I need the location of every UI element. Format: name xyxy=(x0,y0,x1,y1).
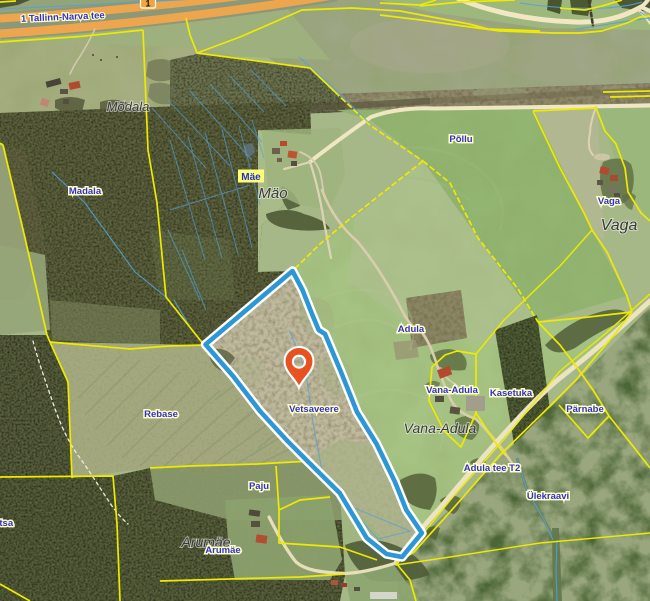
svg-text:Adula: Adula xyxy=(398,324,425,335)
svg-text:Vaga: Vaga xyxy=(598,196,621,207)
svg-text:1: 1 xyxy=(145,0,150,9)
svg-text:Adula tee T2: Adula tee T2 xyxy=(464,463,521,474)
svg-text:Vetsaveere: Vetsaveere xyxy=(289,404,339,415)
svg-text:Vana-Adula: Vana-Adula xyxy=(404,420,477,436)
svg-text:Mõdala: Mõdala xyxy=(107,99,150,114)
svg-text:Põllu: Põllu xyxy=(449,134,472,145)
svg-text:Paju: Paju xyxy=(249,481,269,492)
svg-text:Kasetuka: Kasetuka xyxy=(490,388,533,399)
svg-text:Madala: Madala xyxy=(69,186,102,197)
svg-text:Pärnabe: Pärnabe xyxy=(566,404,604,415)
svg-text:Otsa: Otsa xyxy=(0,518,14,529)
svg-text:Vaga: Vaga xyxy=(601,217,638,234)
svg-text:Arumäe: Arumäe xyxy=(205,545,240,556)
svg-text:Vana-Adula: Vana-Adula xyxy=(426,385,478,396)
svg-text:Ülekraavi: Ülekraavi xyxy=(527,491,569,502)
svg-text:Mäo: Mäo xyxy=(258,185,287,202)
svg-text:Mäe: Mäe xyxy=(241,172,261,183)
svg-text:Rebase: Rebase xyxy=(144,409,178,420)
